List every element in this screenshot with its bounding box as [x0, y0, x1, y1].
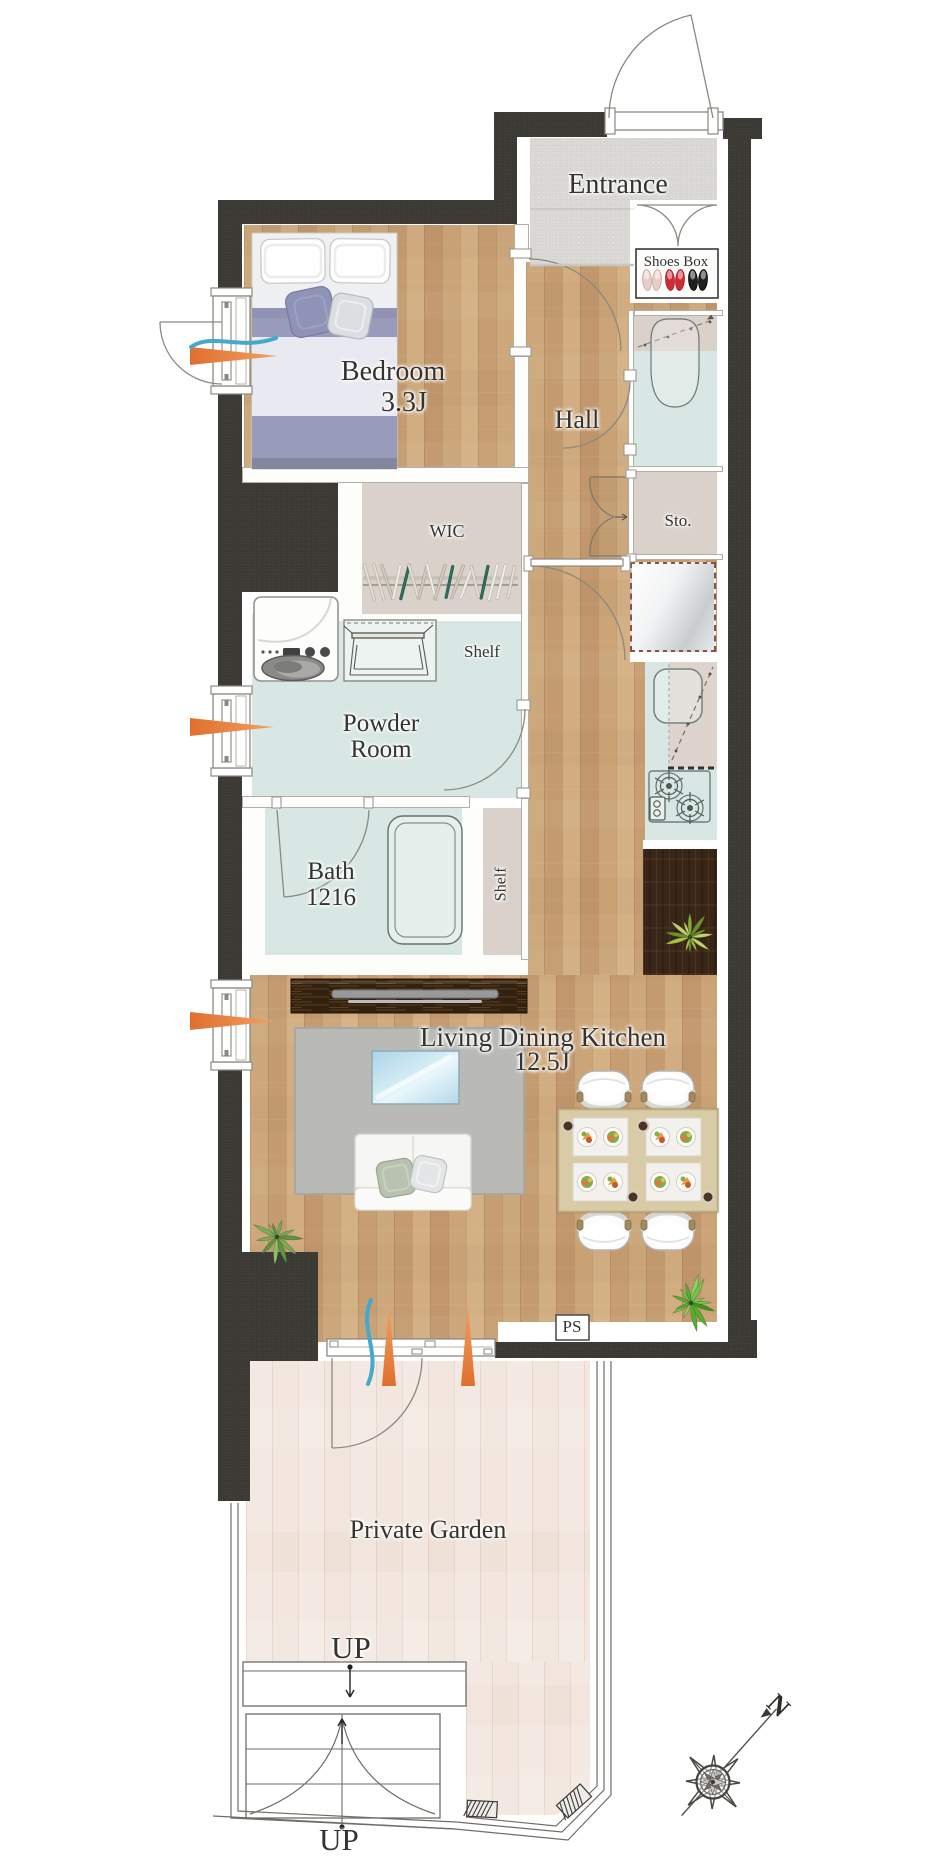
- svg-text:N: N: [761, 1688, 796, 1723]
